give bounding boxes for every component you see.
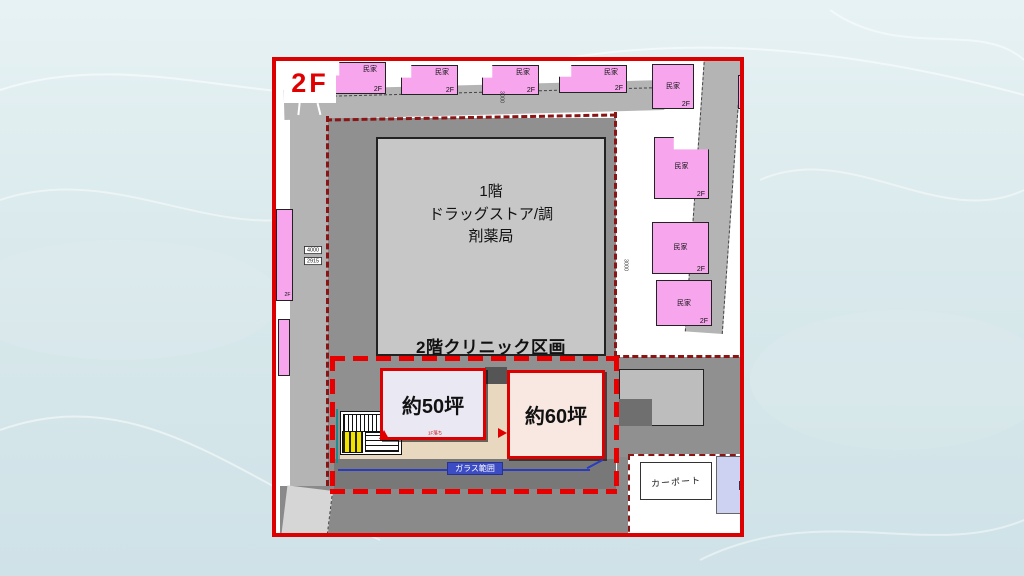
entry-marker-up-icon [379,430,389,439]
clinic-unit-60: 約60坪 [507,370,605,459]
clinic-unit-60-label: 約60坪 [525,400,587,429]
house-label: 民家 [653,242,708,252]
house-right-3: 民家 2F [652,222,709,274]
house-label: 民家 [363,64,377,74]
entry-marker-right-icon [498,428,507,438]
house-floor-label: 2F [682,101,690,108]
dim-4000: 4000 [304,246,322,254]
house-label: 民家 [653,81,693,91]
house-floor-label: 2F [697,191,705,198]
elevator-icon [342,431,363,453]
shaft-dark [485,367,507,384]
house-top-3: 民家 2F [482,65,539,95]
house-label: 民家 [655,161,708,171]
clipped-glyph [739,481,744,490]
glass-range-label: ガラス範囲 [455,463,495,474]
house-floor-label: 2F [697,266,705,273]
annex-block [716,456,744,514]
house-floor-label: 2F [615,85,623,92]
house-label: 民家 [604,67,618,77]
house-right-4: 民家 2F [656,280,712,326]
clinic-zone-heading: 2階クリニック区画 [381,333,601,358]
road-bottom-left-wedge [281,485,333,537]
corridor-gap [485,383,507,459]
dim-3000-top: 3000 [499,91,504,103]
floor-badge: 2F [284,63,336,103]
carport-label: カーポート [651,473,702,489]
glass-range-badge: ガラス範囲 [447,462,503,475]
clinic-dash-left [330,356,335,494]
house-label: 民家 [516,67,530,77]
house-right-1: 民家 2F [652,64,694,109]
dim-3000-right: 3000 [623,259,628,271]
road-left [290,97,330,537]
dim-2915: 2915 [304,257,322,265]
house-fragment [278,319,290,376]
house-top-4: 民家 2F [559,65,627,93]
east-building-notch [619,399,652,426]
house-floor-label: 2F [527,87,535,94]
house-floor-label: 2F [285,292,291,297]
house-top-1: 民家 2F [329,62,386,94]
main-building-label: 1階 ドラッグストア/調 剤薬局 [376,181,606,249]
house-label: 民家 [435,67,449,77]
building-label-line1: 1階 [376,181,606,204]
clinic-dash-right [614,356,619,494]
house-fragment [738,75,744,109]
house-fragment [740,118,744,145]
floor-badge-label: 2F [291,68,329,99]
site-boundary-left [326,116,329,486]
house-floor-label: 2F [700,318,708,325]
site-plan: 1階 ドラッグストア/調 剤薬局 2階クリニック区画 約50坪 [272,57,744,537]
house-top-2: 民家 2F [401,65,458,95]
site-boundary-east [614,355,744,358]
clinic-unit-50-label: 約50坪 [402,390,464,419]
corridor-note: 1F落ち [428,429,442,436]
clinic-dash-top [330,356,617,361]
west-wall-line [336,409,338,463]
house-floor-label: 2F [374,86,382,93]
house-floor-label: 2F [446,87,454,94]
site-boundary-right [614,112,617,357]
house-fragment: 2F [276,209,293,301]
house-label: 民家 [657,298,711,308]
carport-box: カーポート [640,462,712,500]
clinic-dash-bottom [330,489,617,494]
building-label-line3: 剤薬局 [376,226,606,249]
building-label-line2: ドラッグストア/調 [376,204,606,227]
slide-background: 1階 ドラッグストア/調 剤薬局 2階クリニック区画 約50坪 [0,0,1024,576]
